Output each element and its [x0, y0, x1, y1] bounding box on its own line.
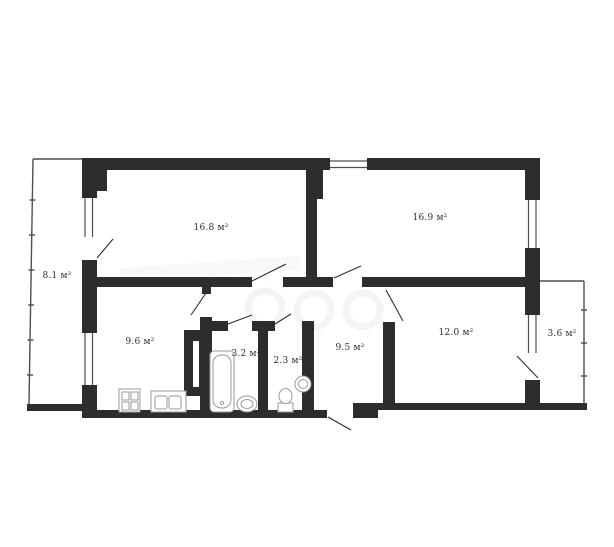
round-basin-icon	[295, 376, 311, 392]
wall-partition-16-8-16-9	[306, 199, 317, 287]
wall-toilet-left	[258, 331, 268, 418]
balcony-left-outline	[27, 159, 82, 404]
window-top-room169	[330, 161, 367, 168]
door-room-16-9	[334, 266, 361, 278]
wall-right-1	[525, 158, 540, 200]
wall-toilet-lintel	[252, 321, 275, 331]
wall-bottom-right	[378, 403, 587, 410]
wall-room12-left	[383, 322, 395, 407]
door-balcony-right	[517, 356, 538, 378]
bathtub-icon	[210, 351, 234, 412]
floor-plan: 8.1 м² 16.8 м² 16.9 м² 9.6 м² 3.2 м² 2.3…	[0, 0, 614, 547]
door-balcony-left	[97, 239, 113, 258]
exterior-walls	[82, 158, 587, 418]
room-label-toilet: 2.3 м²	[274, 356, 303, 366]
wall-top-left	[82, 158, 330, 170]
wall-left-1	[82, 158, 97, 198]
wall-corridor-a	[82, 277, 252, 287]
window-right-room120	[529, 315, 537, 353]
wall-toilet-right	[302, 321, 314, 418]
balcony-left-bottom-wall	[27, 404, 82, 411]
bathroom-sink-icon	[237, 396, 257, 412]
room-label-hallway: 9.5 м²	[336, 343, 365, 353]
window-kitchen-balcony	[85, 333, 93, 385]
room-label-room-16-9: 16.9 м²	[413, 213, 448, 223]
kitchen-sink-icon	[151, 391, 186, 412]
room-label-kitchen: 9.6 м²	[126, 337, 155, 347]
wall-bottom-step	[353, 403, 378, 418]
door-kitchen	[191, 293, 206, 315]
vent-shaft-slot	[193, 341, 199, 387]
wall-kitchen-stub	[202, 287, 211, 294]
window-room168-balcony	[85, 198, 93, 237]
floor-plan-drawing	[0, 0, 614, 547]
wall-left-2	[82, 260, 97, 333]
door-entrance	[328, 417, 351, 430]
room-label-room-16-8: 16.8 м²	[194, 223, 229, 233]
door-room-12-0	[386, 290, 403, 321]
wall-top-right	[367, 158, 540, 170]
balcony-right-outline	[540, 281, 587, 404]
room-label-room-12-0: 12.0 м²	[439, 328, 474, 338]
room-label-balcony-left: 8.1 м²	[43, 271, 72, 281]
stove-icon	[119, 389, 140, 412]
wall-corridor-b	[283, 277, 333, 287]
wall-corridor-c	[362, 277, 540, 287]
window-right-room169	[529, 200, 537, 248]
wall-partition-top-block	[306, 170, 323, 199]
room-label-bathroom: 3.2 м²	[232, 349, 261, 359]
room-label-balcony-right: 3.6 м²	[548, 329, 577, 339]
wall-bathroom-top-stub	[212, 321, 228, 331]
toilet-icon	[278, 389, 293, 413]
